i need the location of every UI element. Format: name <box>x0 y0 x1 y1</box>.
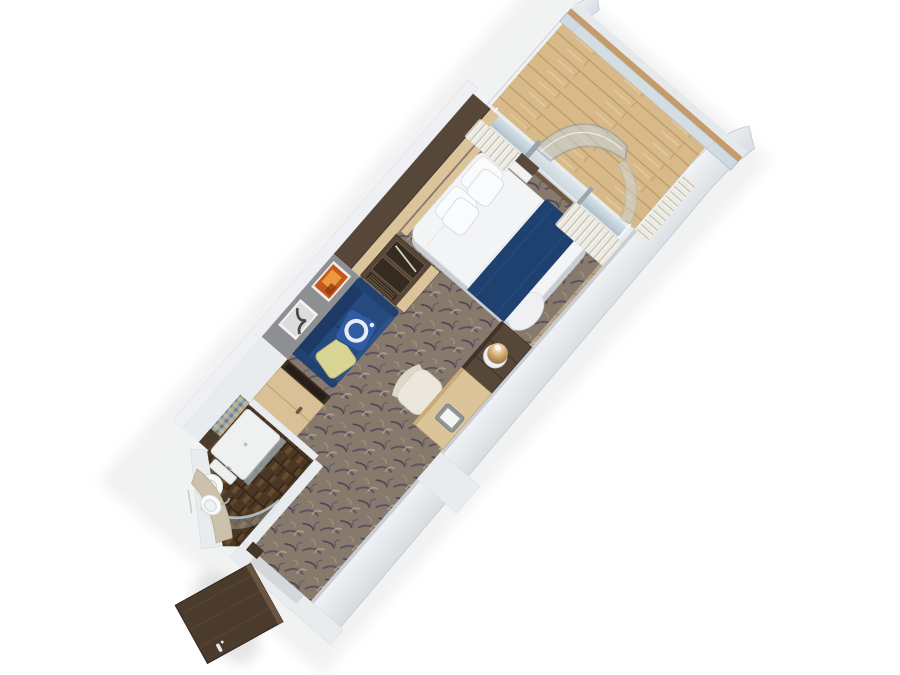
stateroom-render-page <box>0 0 900 675</box>
stateroom-room-group <box>51 0 779 675</box>
stateroom-floorplan-svg <box>0 0 900 675</box>
